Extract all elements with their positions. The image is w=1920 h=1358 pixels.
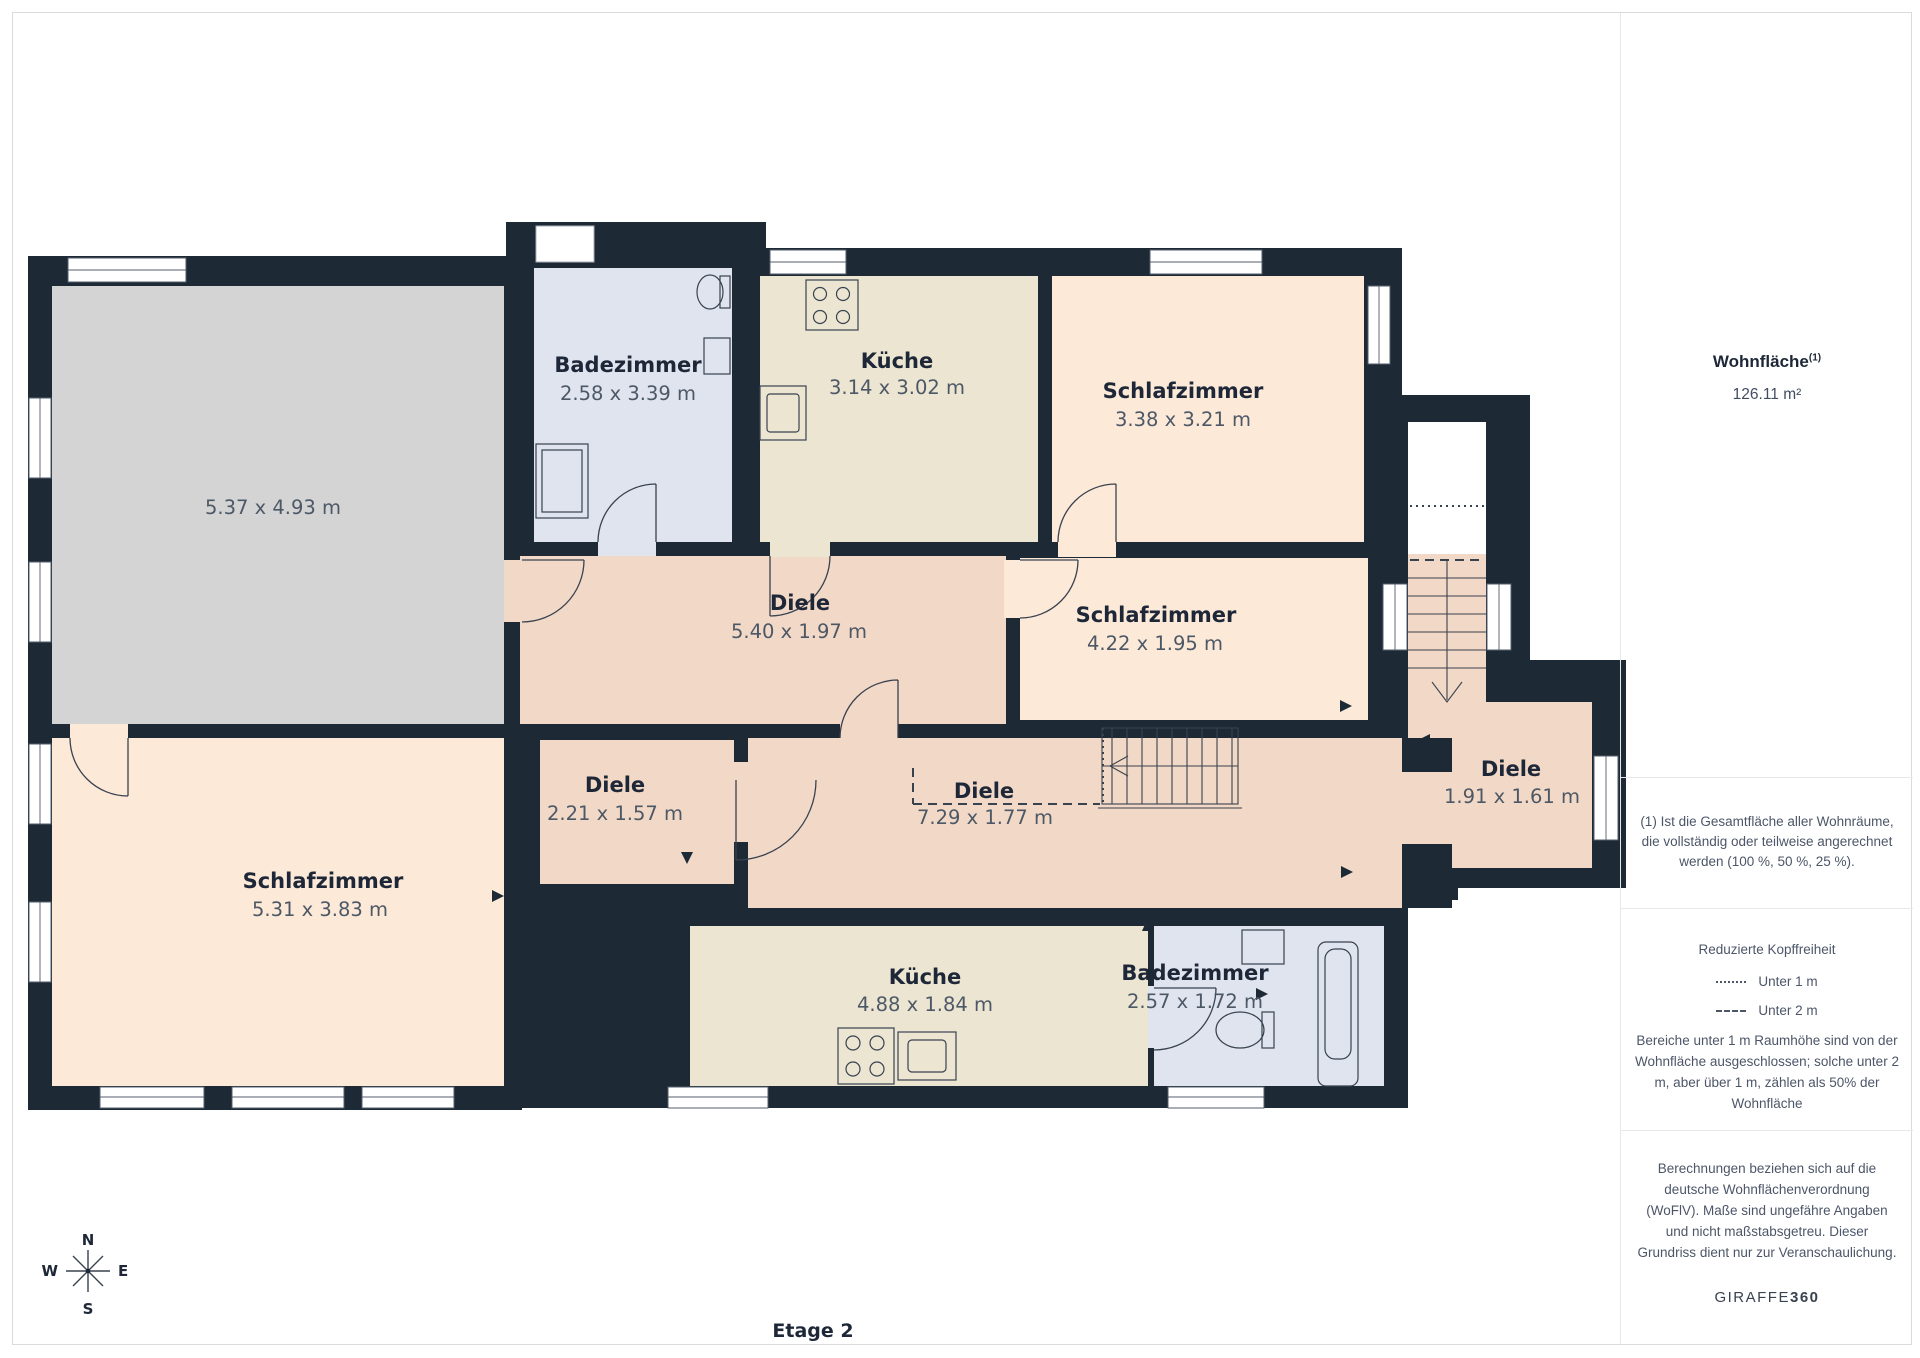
room-dims: 2.57 x 1.72 m — [1127, 990, 1263, 1013]
compass-west: W — [41, 1262, 58, 1280]
window — [232, 1087, 344, 1108]
floorplan-page: 5.37 x 4.93 m Badezimmer 2.58 x 3.39 m K… — [0, 0, 1920, 1358]
room-dims: 2.21 x 1.57 m — [547, 802, 683, 825]
dotted-line-sample — [1716, 981, 1746, 983]
section-divider — [1621, 1130, 1913, 1131]
room-dims: 2.58 x 3.39 m — [560, 382, 696, 405]
room-label: Küche — [861, 349, 934, 373]
room-dims: 5.40 x 1.97 m — [731, 620, 867, 643]
legend-under-1m: Unter 1 m — [1621, 974, 1913, 989]
area-summary: Wohnfläche(1) 126.11 m² — [1621, 352, 1913, 404]
roof-notch — [536, 226, 594, 262]
sidebar-divider — [1620, 13, 1621, 1344]
section-divider — [1621, 908, 1913, 909]
room-dims: 4.22 x 1.95 m — [1087, 632, 1223, 655]
disclaimer-section: Berechnungen beziehen sich auf die deuts… — [1621, 1158, 1913, 1306]
room-dims: 3.14 x 3.02 m — [829, 376, 965, 399]
footnote-marker: (1) — [1809, 352, 1821, 363]
room-label: Diele — [1481, 757, 1541, 781]
room-dims: 7.29 x 1.77 m — [917, 806, 1053, 829]
dashed-line-sample — [1716, 1010, 1746, 1012]
compass-east: E — [118, 1262, 128, 1280]
window — [1168, 1087, 1264, 1108]
window — [362, 1087, 454, 1108]
compass-icon: N S W E — [41, 1231, 128, 1318]
compass-north: N — [82, 1231, 95, 1249]
section-divider — [1621, 777, 1913, 778]
room-label: Schlafzimmer — [243, 869, 404, 893]
room-label: Schlafzimmer — [1103, 379, 1264, 403]
room-dims: 4.88 x 1.84 m — [857, 993, 993, 1016]
legend-label: Unter 1 m — [1758, 974, 1817, 989]
room-dims: 3.38 x 3.21 m — [1115, 408, 1251, 431]
footnote-section: (1) Ist die Gesamtfläche aller Wohnräume… — [1621, 812, 1913, 872]
legend-label: Unter 2 m — [1758, 1003, 1817, 1018]
floor-label: Etage 2 — [772, 1320, 853, 1342]
floorplan-drawing: 5.37 x 4.93 m Badezimmer 2.58 x 3.39 m K… — [0, 0, 1920, 1358]
room-label: Diele — [585, 773, 645, 797]
room-label: Küche — [889, 965, 962, 989]
footnote-text: (1) Ist die Gesamtfläche aller Wohnräume… — [1633, 812, 1901, 872]
room-label: Schlafzimmer — [1076, 603, 1237, 627]
headroom-note: Bereiche unter 1 m Raumhöhe sind von der… — [1633, 1030, 1901, 1114]
headroom-section: Reduzierte Kopffreiheit Unter 1 m Unter … — [1621, 940, 1913, 1114]
giraffe360-logo: GIRAFFE360 — [1621, 1289, 1913, 1306]
room-dims: 5.31 x 3.83 m — [252, 898, 388, 921]
room-label: Diele — [954, 779, 1014, 803]
window — [668, 1087, 768, 1108]
area-value: 126.11 m² — [1621, 386, 1913, 404]
disclaimer-text: Berechnungen beziehen sich auf die deuts… — [1636, 1158, 1898, 1263]
compass-south: S — [83, 1300, 94, 1318]
room-kueche-top — [760, 276, 1038, 542]
stairwell-void — [1408, 422, 1486, 554]
room-label: Badezimmer — [554, 353, 702, 377]
room-diele-central — [748, 738, 1452, 908]
room-badezimmer-top — [534, 268, 732, 542]
area-title: Wohnfläche(1) — [1621, 352, 1913, 372]
headroom-title: Reduzierte Kopffreiheit — [1621, 940, 1913, 960]
legend-under-2m: Unter 2 m — [1621, 1003, 1913, 1018]
room-dims: 1.91 x 1.61 m — [1444, 785, 1580, 808]
window — [100, 1087, 204, 1108]
room-dims: 5.37 x 4.93 m — [205, 496, 341, 519]
room-fill-layer — [52, 268, 1592, 1086]
room-label: Diele — [770, 591, 830, 615]
room-label: Badezimmer — [1121, 961, 1269, 985]
